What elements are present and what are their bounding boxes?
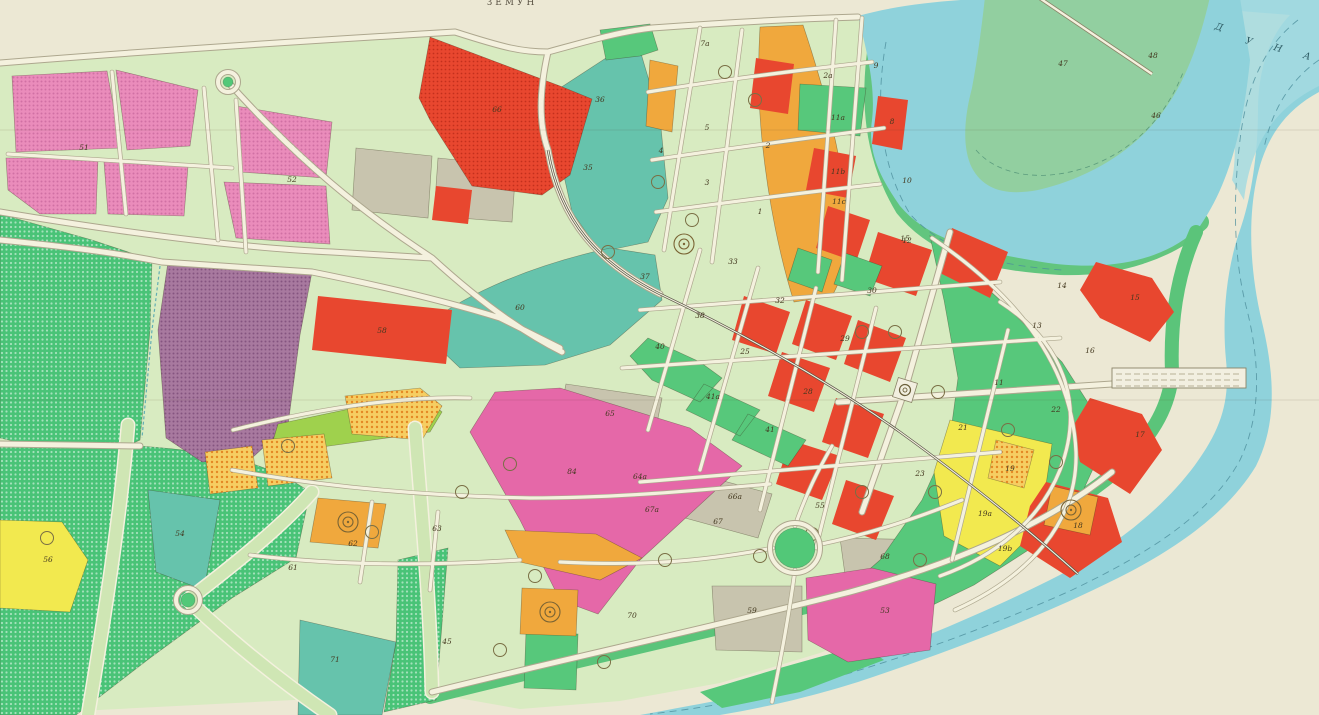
parcel-label: 7a bbox=[700, 39, 709, 48]
parcel-label: 17 bbox=[1135, 430, 1145, 439]
parcel-label: 63 bbox=[432, 524, 442, 533]
parcel-label: 61 bbox=[288, 563, 298, 572]
parcel-label: 19b bbox=[998, 544, 1013, 553]
parcel-label: 2a bbox=[822, 71, 832, 80]
zoning-map-svg: 51526636357a2a985432111a11b11c1012154748… bbox=[0, 0, 1319, 715]
roundabout-center bbox=[223, 77, 233, 87]
parcel-label: 67a bbox=[645, 505, 659, 514]
parcel-label: 9 bbox=[874, 61, 879, 70]
parcel-label: 66 bbox=[492, 105, 502, 114]
plaza-circle-dot bbox=[347, 521, 349, 523]
parcel-label: 23 bbox=[914, 469, 925, 478]
parcel-label: 33 bbox=[728, 257, 738, 266]
parcel-label: 1 bbox=[758, 207, 763, 216]
parcel-label: 62 bbox=[348, 539, 358, 548]
parcel-label: 45 bbox=[441, 637, 452, 646]
parcel-label: 5 bbox=[705, 123, 710, 132]
parcel-label: 38 bbox=[695, 311, 705, 320]
parcel-label: 22 bbox=[1050, 405, 1061, 414]
parcel-label: 11b bbox=[831, 167, 846, 176]
parcel-label: 3 bbox=[705, 178, 710, 187]
parcel-label: 41 bbox=[764, 425, 775, 434]
parcel-label: 11a bbox=[831, 113, 845, 122]
parcel-label: 41a bbox=[705, 392, 720, 401]
roundabout-center bbox=[181, 593, 195, 607]
parcel-label: 4 bbox=[658, 146, 664, 155]
parcel-label: 11c bbox=[832, 197, 847, 206]
parcel-label: 2 bbox=[765, 141, 771, 150]
parcel-label: 10 bbox=[902, 176, 912, 185]
parcel-label: 25 bbox=[739, 347, 750, 356]
parcel-label: 55 bbox=[815, 501, 825, 510]
parcel-label: 64a bbox=[633, 472, 647, 481]
parcel-label: 84 bbox=[567, 467, 577, 476]
parcel-label: 56 bbox=[43, 555, 53, 564]
plaza-circle-dot bbox=[683, 243, 685, 245]
plaza-circle-dot bbox=[549, 611, 551, 613]
bridge bbox=[1112, 368, 1246, 388]
parcel-label: 51 bbox=[79, 143, 89, 152]
parcel-label: 71 bbox=[330, 655, 340, 664]
parcel-label: 28 bbox=[802, 387, 813, 396]
parcel-label: 14 bbox=[1057, 281, 1067, 290]
parcel-label: 65 bbox=[605, 409, 615, 418]
parcel-label: 67 bbox=[713, 517, 723, 526]
parcel-label: 8 bbox=[890, 117, 895, 126]
parcel-label: 48 bbox=[1147, 51, 1158, 60]
plaza-circle-dot bbox=[1070, 509, 1072, 511]
parcel-label: 16 bbox=[1085, 346, 1095, 355]
parcel-label: 60 bbox=[515, 303, 525, 312]
parcel-label: 53 bbox=[880, 606, 890, 615]
parcel-label: 11 bbox=[994, 378, 1004, 387]
parcel-label: 46 bbox=[1150, 111, 1161, 120]
parcel-label: 30 bbox=[867, 286, 877, 295]
parcel-label: 15 bbox=[1130, 293, 1140, 302]
roundabout-center bbox=[775, 528, 815, 568]
parcel-label: 13 bbox=[1032, 321, 1042, 330]
parcel-label: 19 bbox=[1005, 464, 1015, 473]
parcel-label: 70 bbox=[627, 611, 637, 620]
parcel-label: 58 bbox=[377, 326, 387, 335]
map-title: ЗЕМУН bbox=[487, 0, 538, 8]
parcel-label: 40 bbox=[654, 342, 665, 351]
map-canvas: 51526636357a2a985432111a11b11c1012154748… bbox=[0, 0, 1319, 715]
parcel-label: 35 bbox=[583, 163, 593, 172]
parcel-label: 47 bbox=[1057, 59, 1068, 68]
parcel-label: 15 bbox=[900, 234, 910, 243]
parcel-label: 21 bbox=[957, 423, 968, 432]
parcel-label: 59 bbox=[747, 606, 757, 615]
parcel-label: 52 bbox=[287, 175, 297, 184]
parcel-label: 32 bbox=[775, 296, 785, 305]
parcel-label: 29 bbox=[839, 334, 850, 343]
parcel-label: 54 bbox=[175, 529, 185, 538]
parcel-label: 68 bbox=[880, 552, 890, 561]
parcel-label: 66a bbox=[728, 492, 742, 501]
parcel-label: 18 bbox=[1073, 521, 1083, 530]
parcel-label: 37 bbox=[640, 272, 650, 281]
parcel-label: 36 bbox=[595, 95, 605, 104]
parcel-label: 19a bbox=[978, 509, 992, 518]
